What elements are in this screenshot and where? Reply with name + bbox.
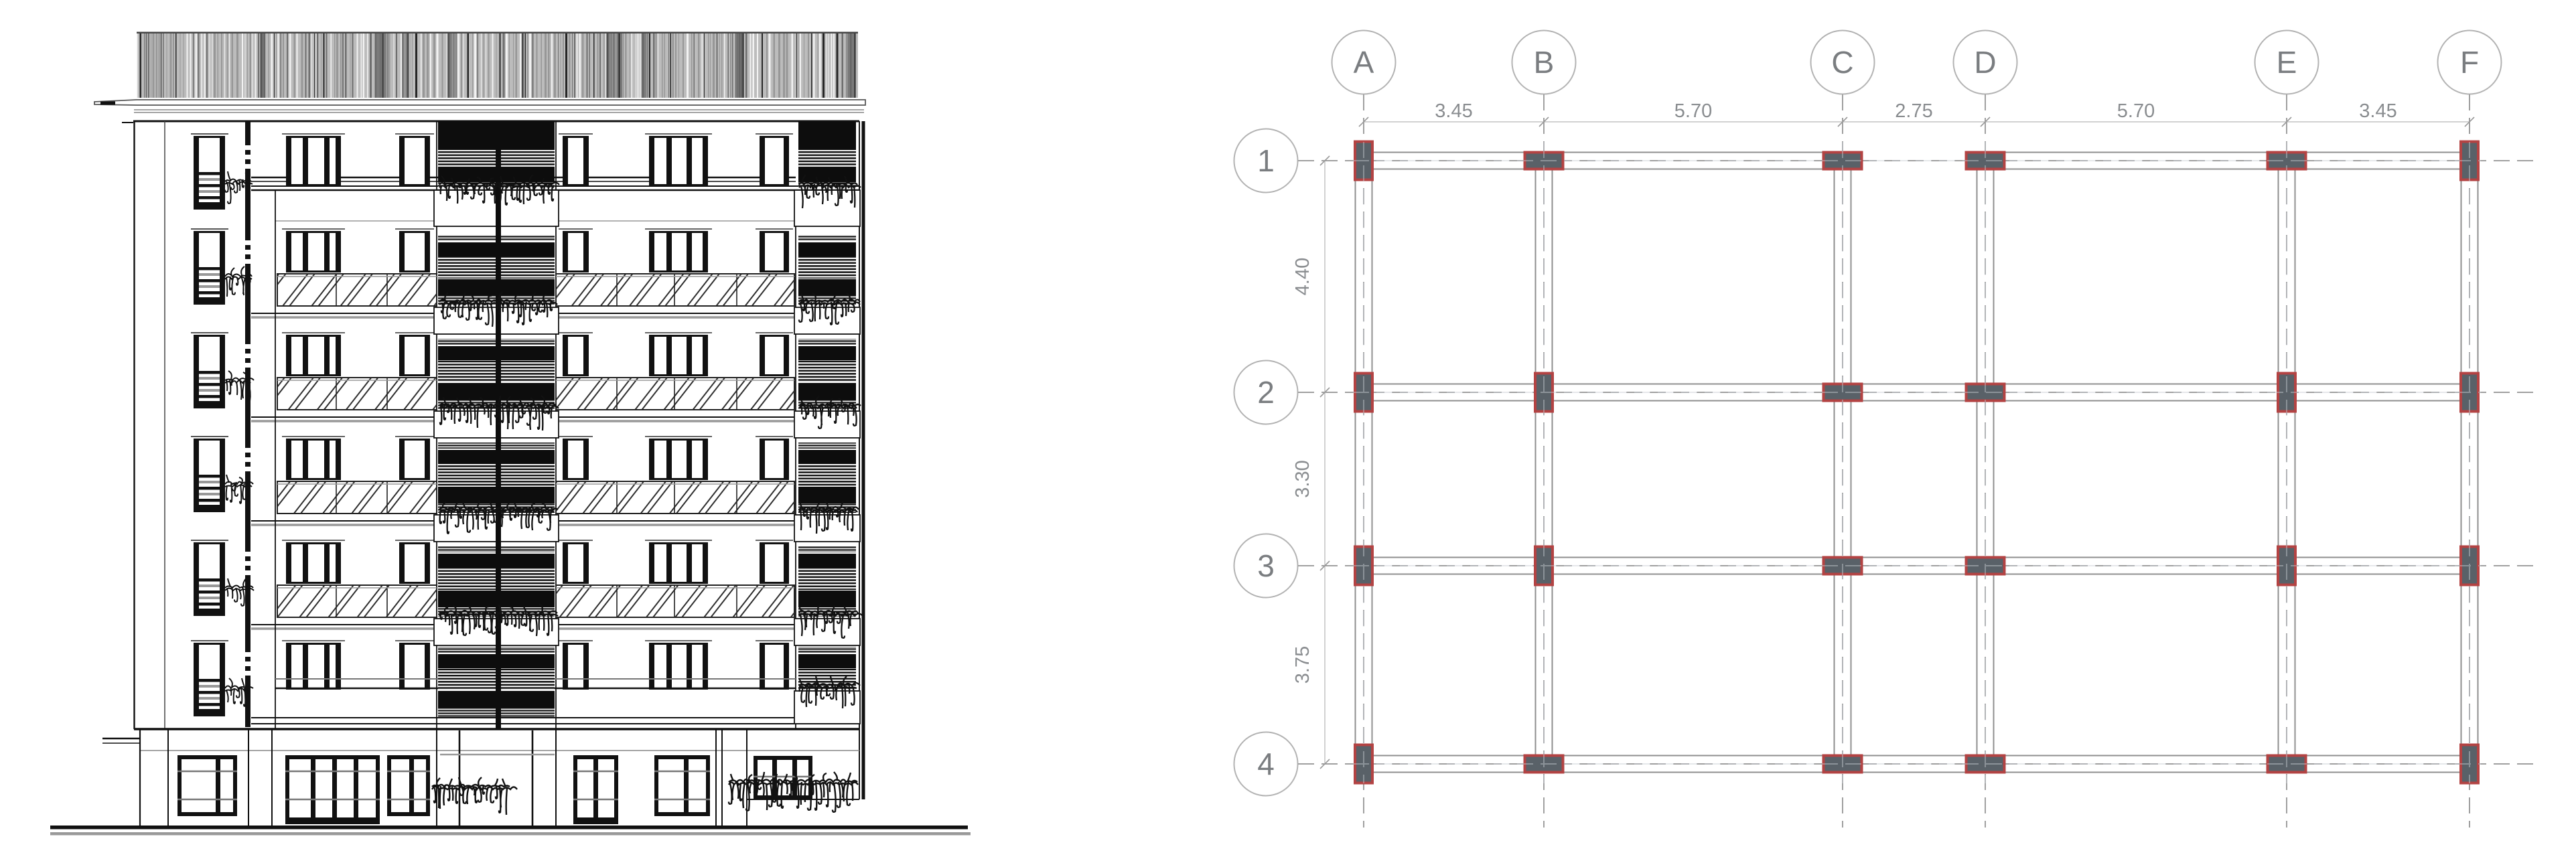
svg-text:2.75: 2.75 xyxy=(1895,100,1932,122)
svg-text:4.40: 4.40 xyxy=(1292,258,1313,295)
svg-text:4: 4 xyxy=(1257,747,1275,781)
svg-text:3.75: 3.75 xyxy=(1292,646,1313,684)
svg-text:2: 2 xyxy=(1257,375,1275,410)
svg-text:3.45: 3.45 xyxy=(2359,100,2396,122)
svg-text:C: C xyxy=(1831,45,1853,80)
svg-text:3.30: 3.30 xyxy=(1292,460,1313,497)
svg-text:3.45: 3.45 xyxy=(1435,100,1472,122)
svg-text:E: E xyxy=(2277,45,2297,80)
svg-text:5.70: 5.70 xyxy=(1674,100,1712,122)
svg-text:A: A xyxy=(1354,45,1374,80)
svg-text:F: F xyxy=(2460,45,2479,80)
svg-text:1: 1 xyxy=(1257,143,1275,178)
svg-text:B: B xyxy=(1534,45,1555,80)
svg-text:D: D xyxy=(1974,45,1996,80)
svg-text:3: 3 xyxy=(1257,548,1275,583)
svg-text:5.70: 5.70 xyxy=(2117,100,2155,122)
